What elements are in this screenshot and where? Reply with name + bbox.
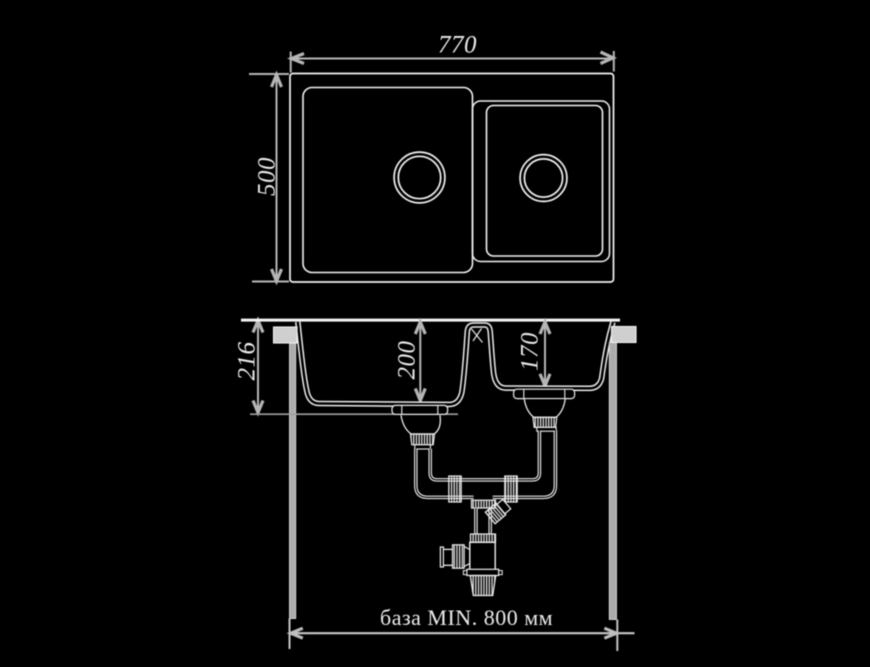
svg-text:200: 200 [394,341,421,380]
svg-text:170: 170 [517,332,544,371]
svg-text:500: 500 [254,157,281,196]
svg-text:216: 216 [234,342,261,381]
svg-text:база MIN. 800 мм: база MIN. 800 мм [380,605,553,630]
svg-text:770: 770 [438,32,477,59]
